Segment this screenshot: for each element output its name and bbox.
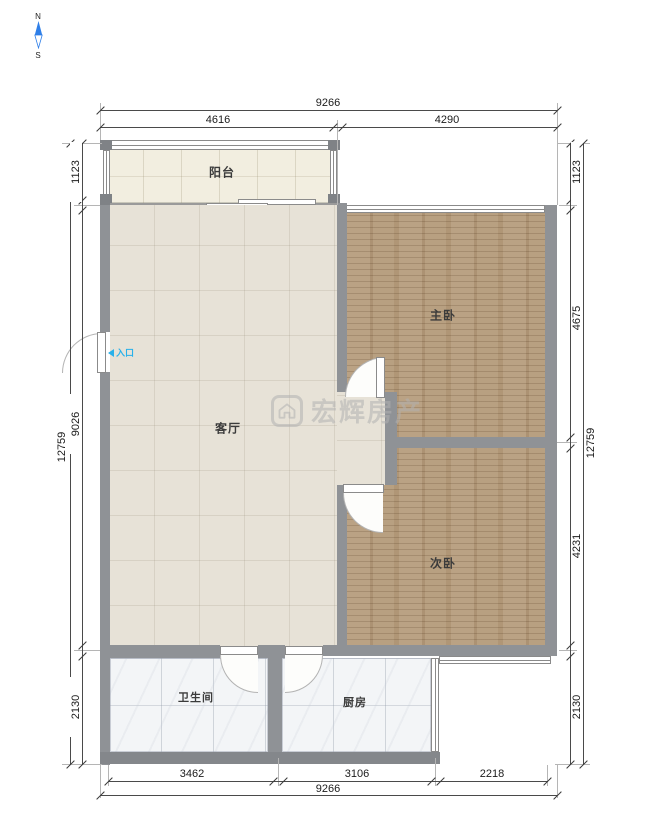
- extension-line: [555, 764, 590, 765]
- dim-top-seg1: 4616: [188, 114, 248, 126]
- room-label-living: 客厅: [215, 420, 241, 437]
- entry-label: 入口: [116, 346, 134, 359]
- extension-line: [559, 650, 577, 651]
- second-bedroom-door-leaf: [343, 484, 384, 493]
- pillar: [100, 140, 112, 150]
- dim-left-total: 12759: [56, 417, 68, 477]
- kitchen-window: [431, 658, 439, 752]
- wall: [337, 203, 347, 392]
- room-label-second-bedroom: 次卧: [430, 555, 456, 572]
- dimension-line: [100, 127, 557, 128]
- dim-top-seg2: 4290: [417, 114, 477, 126]
- floor-plan: N S 阳台 入口: [0, 0, 657, 820]
- wall: [337, 485, 347, 650]
- dimension-line: [100, 795, 557, 796]
- kitchen-door-leaf: [285, 646, 323, 655]
- second-bedroom-south-window: [439, 656, 551, 664]
- balcony-left-window: [103, 150, 110, 196]
- entry-arrow-icon: [108, 349, 114, 357]
- dimension-line: [70, 143, 71, 765]
- dim-bottom-seg1: 3462: [162, 768, 222, 780]
- extension-line: [557, 103, 558, 205]
- wall: [323, 645, 557, 656]
- dimension-line: [570, 143, 571, 765]
- dim-top-total: 9266: [298, 97, 358, 109]
- bathroom-door-leaf: [220, 646, 258, 655]
- room-label-kitchen: 厨房: [343, 694, 367, 710]
- watermark: 宏辉房产: [271, 392, 423, 429]
- dimension-line: [82, 143, 83, 765]
- room-label-bathroom: 卫生间: [178, 689, 214, 705]
- wall: [100, 645, 220, 658]
- extension-line: [557, 442, 577, 443]
- watermark-brand: 宏辉房产: [311, 392, 423, 429]
- dimension-line: [100, 110, 557, 111]
- dim-left-seg1: 1123: [70, 142, 82, 202]
- dim-right-total: 12759: [585, 413, 597, 473]
- entry-door-leaf: [97, 332, 106, 373]
- wall: [100, 372, 110, 765]
- master-bedroom-window: [340, 205, 545, 213]
- watermark-house-icon: [271, 395, 303, 427]
- compass-south-label: S: [28, 51, 48, 60]
- wall: [545, 205, 557, 650]
- room-label-balcony: 阳台: [209, 164, 235, 181]
- compass-north-label: N: [28, 12, 48, 21]
- dim-left-seg3: 2130: [70, 677, 82, 737]
- dim-bottom-seg2: 3106: [327, 768, 387, 780]
- dim-right-seg4: 2130: [571, 677, 583, 737]
- dim-right-seg2: 4675: [571, 288, 583, 348]
- extension-line: [547, 765, 548, 786]
- pillar: [328, 140, 340, 150]
- dim-left-seg2: 9026: [70, 394, 82, 454]
- wall: [268, 658, 282, 752]
- extension-line: [108, 765, 109, 786]
- compass: N S: [28, 12, 48, 60]
- extension-line: [74, 650, 100, 651]
- entry-marker: 入口: [108, 346, 134, 359]
- dim-bottom-seg3: 2218: [462, 768, 522, 780]
- compass-needle-icon: [32, 21, 45, 49]
- dim-right-seg1: 1123: [571, 142, 583, 202]
- bedroom-divider-wall: [385, 437, 557, 448]
- dim-bottom-total: 9266: [298, 783, 358, 795]
- extension-line: [337, 120, 338, 205]
- wall: [258, 645, 285, 658]
- wall: [100, 205, 110, 332]
- dimension-line: [108, 781, 548, 782]
- dimension-line: [583, 143, 584, 765]
- balcony-right-window: [330, 150, 337, 196]
- room-label-master-bedroom: 主卧: [430, 307, 456, 324]
- extension-line: [74, 205, 100, 206]
- exterior-south-wall: [100, 752, 440, 764]
- dim-right-seg3: 4231: [571, 516, 583, 576]
- balcony-top-window: [103, 140, 337, 150]
